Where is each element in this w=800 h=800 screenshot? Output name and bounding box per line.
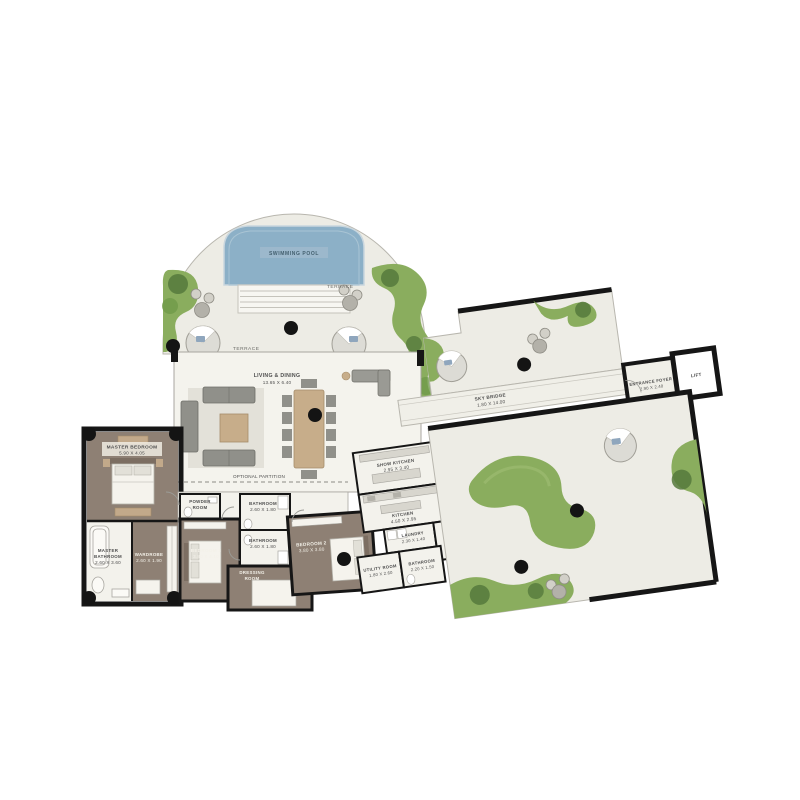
column (284, 321, 298, 335)
dressing-label-2: ROOM (245, 576, 260, 581)
master-bathroom-dims: 2.60 X 3.60 (95, 560, 121, 565)
bathroom-a-label: BATHROOM (249, 501, 277, 506)
column (169, 427, 183, 441)
bathroom-b: BATHROOM 2.60 X 1.80 (240, 530, 290, 566)
wardrobe-dims: 2.60 X 1.90 (136, 558, 162, 563)
utility-room: UTILITY ROOM 1.80 X 2.60 (357, 552, 404, 593)
bedroom3-dims: 3.80 X 4.10 (193, 554, 219, 559)
column (337, 552, 351, 566)
floorplan-page: SWIMMING POOL (0, 0, 800, 800)
master-bathroom-label-1: MASTER (98, 548, 119, 553)
bathroom-b-dims: 2.60 X 1.80 (250, 544, 276, 549)
partition-label: OPTIONAL PARTITION (233, 474, 285, 479)
column (82, 427, 96, 441)
powder-label-2: ROOM (193, 505, 208, 510)
master-bathroom-label-2: BATHROOM (94, 554, 122, 559)
middle-block: POWDER ROOM BEDROOM 3 3.80 X 4.10 BATHRO… (178, 492, 377, 610)
pool-label: SWIMMING POOL (269, 251, 319, 257)
dressing-label-1: DRESSING (239, 570, 265, 575)
bathroom-a: BATHROOM 2.60 X 1.80 (240, 494, 290, 530)
bedroom3-label: BEDROOM 3 (191, 548, 222, 553)
column (82, 591, 96, 605)
column (308, 408, 322, 422)
bathroom-c: BATHROOM 2.20 X 1.50 (399, 546, 446, 587)
living-label: LIVING & DINING (254, 373, 301, 379)
bathroom-a-dims: 2.60 X 1.80 (250, 507, 276, 512)
terrace-label-lower: TERRACE (233, 346, 259, 352)
terrace-label-upper: TERRACE (327, 284, 353, 290)
bathroom-b-label: BATHROOM (249, 538, 277, 543)
powder-label-1: POWDER (189, 499, 211, 504)
wardrobe-label: WARDROBE (135, 552, 164, 557)
master-bedroom-dims: 5.90 X 4.05 (119, 451, 145, 456)
living-dims: 13.65 X 6.40 (263, 380, 292, 385)
master-suite: MASTER BEDROOM 5.90 X 4.05 MASTER BATHRO… (82, 427, 183, 605)
sofa-set (181, 387, 264, 468)
floorplan-canvas: SWIMMING POOL (0, 0, 800, 800)
lower-terrace (428, 392, 716, 619)
powder-room: POWDER ROOM (180, 494, 220, 519)
